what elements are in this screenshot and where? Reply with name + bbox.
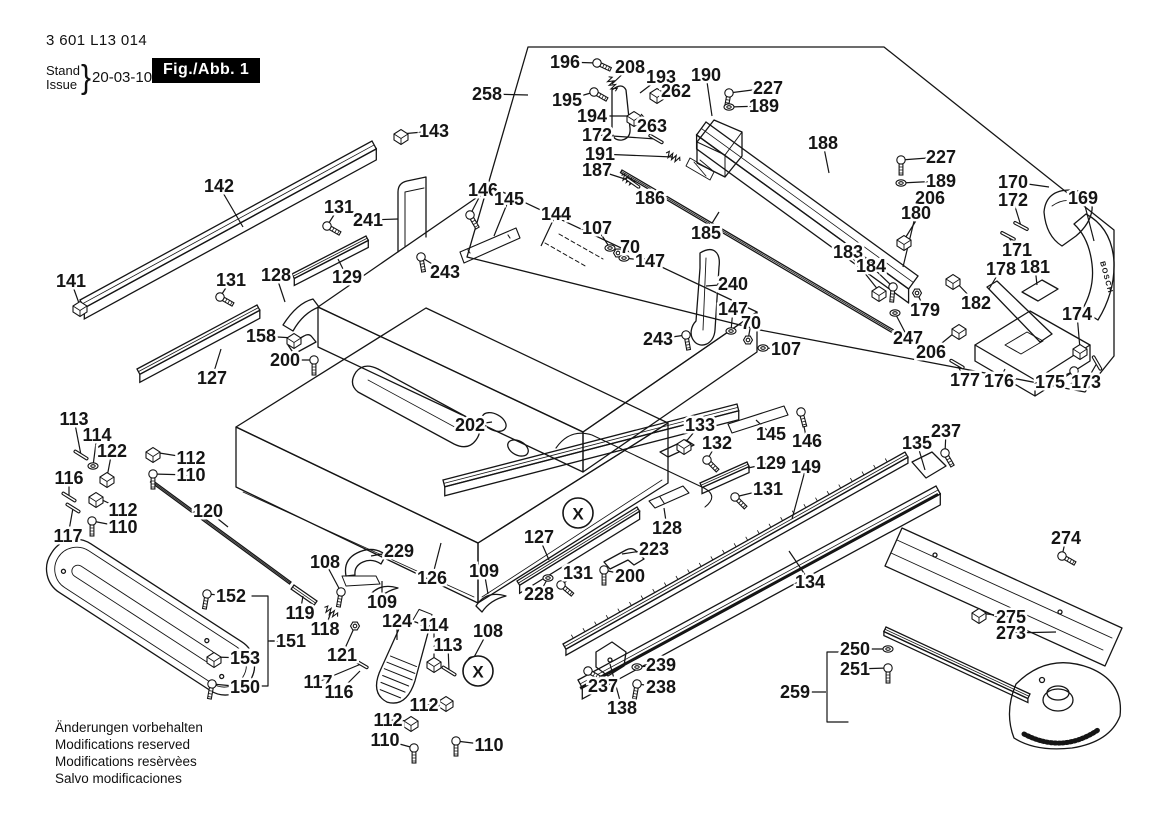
part-label-153: 153 <box>230 648 260 668</box>
screw-glyph <box>630 679 642 699</box>
part-label-124: 124 <box>382 611 412 631</box>
part-label-151: 151 <box>276 631 306 651</box>
screw-glyph <box>591 57 612 73</box>
part-label-120: 120 <box>193 501 223 521</box>
part-label-180: 180 <box>901 203 931 223</box>
part-label-147: 147 <box>635 251 665 271</box>
part-label-173: 173 <box>1071 372 1101 392</box>
part-label-110: 110 <box>474 735 503 755</box>
u-bracket-241 <box>398 177 426 252</box>
part-label-172: 172 <box>582 125 612 145</box>
washer-glyph <box>632 664 642 670</box>
part-label-259: 259 <box>780 682 810 702</box>
part-label-116: 116 <box>324 682 353 702</box>
part-label-138: 138 <box>607 698 637 718</box>
part-label-243: 243 <box>430 262 460 282</box>
part-label-145: 145 <box>756 424 786 444</box>
part-label-129: 129 <box>332 267 362 287</box>
screw-glyph <box>588 86 609 103</box>
part-label-240: 240 <box>718 274 748 294</box>
part-label-129: 129 <box>756 453 786 473</box>
part-label-116: 116 <box>54 468 83 488</box>
part-label-145: 145 <box>494 189 524 209</box>
screw-glyph <box>410 744 418 763</box>
part-label-149: 149 <box>791 457 821 477</box>
block-glyph <box>439 697 453 712</box>
screw-glyph <box>310 356 318 375</box>
part-label-262: 262 <box>661 81 691 101</box>
part-label-172: 172 <box>998 190 1028 210</box>
part-label-251: 251 <box>840 659 870 679</box>
block-glyph <box>1073 345 1087 360</box>
part-label-110: 110 <box>370 730 399 750</box>
screw-glyph <box>464 209 481 230</box>
part-label-135: 135 <box>902 433 932 453</box>
part-label-239: 239 <box>646 655 676 675</box>
part-label-131: 131 <box>216 270 246 290</box>
part-label-113: 113 <box>433 635 462 655</box>
callout-x-label: X <box>472 663 484 682</box>
pin-glyph <box>1013 221 1028 231</box>
part-label-131: 131 <box>324 197 354 217</box>
part-label-188: 188 <box>808 133 838 153</box>
clip-128-right <box>649 486 689 508</box>
block-glyph <box>427 658 441 673</box>
part-label-121: 121 <box>327 645 357 665</box>
screw-glyph <box>888 282 898 302</box>
part-label-196: 196 <box>550 52 580 72</box>
part-label-176: 176 <box>984 371 1014 391</box>
block-glyph <box>946 275 960 290</box>
block-glyph <box>404 717 418 732</box>
washer-glyph <box>724 104 734 110</box>
part-label-109: 109 <box>367 592 397 612</box>
part-label-170: 170 <box>998 172 1028 192</box>
part-label-241: 241 <box>353 210 383 230</box>
block-glyph <box>394 130 408 145</box>
washer-glyph <box>883 646 893 652</box>
part-label-177: 177 <box>950 370 980 390</box>
washer-glyph <box>890 310 900 316</box>
latch-block-190 <box>686 120 742 180</box>
modifications-note-line: Änderungen vorbehalten <box>55 719 203 736</box>
part-label-250: 250 <box>840 639 870 659</box>
part-label-185: 185 <box>691 223 721 243</box>
fence-handle-group: BOSCH <box>1044 190 1115 320</box>
extension-plate-273 <box>885 528 1122 666</box>
screw-glyph <box>884 664 892 683</box>
part-label-227: 227 <box>926 147 956 167</box>
washer-glyph <box>758 345 768 351</box>
plate-135 <box>912 452 946 478</box>
part-label-273: 273 <box>996 623 1026 643</box>
part-label-112: 112 <box>409 695 438 715</box>
part-label-202: 202 <box>455 415 485 435</box>
part-label-131: 131 <box>753 479 783 499</box>
part-label-227: 227 <box>753 78 783 98</box>
part-label-263: 263 <box>637 116 667 136</box>
screw-glyph <box>796 407 809 428</box>
part-label-152: 152 <box>216 586 246 606</box>
pad-181 <box>1022 280 1058 301</box>
part-label-158: 158 <box>246 326 276 346</box>
pin-glyph <box>74 450 89 461</box>
part-label-179: 179 <box>910 300 940 320</box>
screw-glyph <box>416 252 428 272</box>
callout-x-label: X <box>572 505 584 524</box>
part-label-114: 114 <box>419 615 448 635</box>
part-label-118: 118 <box>310 619 339 639</box>
part-label-184: 184 <box>856 256 886 276</box>
part-label-237: 237 <box>931 421 961 441</box>
washer-glyph <box>896 180 906 186</box>
nut-glyph <box>351 622 360 630</box>
screw-glyph <box>334 587 346 607</box>
screw-glyph <box>321 220 342 237</box>
screw-glyph <box>600 566 608 585</box>
part-label-186: 186 <box>635 188 665 208</box>
part-label-187: 187 <box>582 160 612 180</box>
washer-glyph <box>88 463 98 469</box>
cam-109-right <box>476 594 506 612</box>
part-label-181: 181 <box>1020 257 1050 277</box>
block-glyph <box>872 287 886 302</box>
part-label-243: 243 <box>643 329 673 349</box>
part-label-70: 70 <box>741 313 761 333</box>
part-label-131: 131 <box>563 563 593 583</box>
block-glyph <box>146 448 160 463</box>
part-label-128: 128 <box>652 518 682 538</box>
arm-178 <box>987 281 1052 342</box>
part-label-182: 182 <box>961 293 991 313</box>
washer-glyph <box>543 575 553 581</box>
screw-glyph <box>88 517 96 536</box>
screw-glyph <box>214 291 235 308</box>
part-label-194: 194 <box>577 106 607 126</box>
latch-plate-193 <box>612 86 630 140</box>
part-label-109: 109 <box>469 561 499 581</box>
block-glyph <box>89 493 103 508</box>
table-top-drawing <box>236 308 668 603</box>
part-label-228: 228 <box>524 584 554 604</box>
part-label-128: 128 <box>261 265 291 285</box>
part-label-189: 189 <box>749 96 779 116</box>
part-label-143: 143 <box>419 121 449 141</box>
screw-glyph <box>205 679 217 699</box>
part-label-175: 175 <box>1035 372 1065 392</box>
part-label-127: 127 <box>524 527 554 547</box>
part-label-144: 144 <box>541 204 571 224</box>
part-label-141: 141 <box>56 271 86 291</box>
part-label-200: 200 <box>270 350 300 370</box>
part-label-112: 112 <box>373 710 402 730</box>
part-label-169: 169 <box>1068 188 1098 208</box>
support-bracket-240 <box>691 250 719 345</box>
diagram-page: 3 601 L13 014 Stand Issue } 20-03-10 Fig… <box>0 0 1169 826</box>
screw-glyph <box>452 737 460 756</box>
exploded-diagram-canvas: BOSCH <box>0 0 1169 826</box>
part-label-229: 229 <box>384 541 414 561</box>
modifications-note: Änderungen vorbehaltenModifications rese… <box>55 719 203 787</box>
screw-glyph <box>897 156 905 175</box>
modifications-note-line: Salvo modificaciones <box>55 770 203 787</box>
part-label-134: 134 <box>795 572 825 592</box>
part-label-117: 117 <box>53 526 82 546</box>
part-label-223: 223 <box>639 539 669 559</box>
part-label-206: 206 <box>916 342 946 362</box>
part-label-133: 133 <box>685 415 715 435</box>
pin-glyph <box>66 503 81 514</box>
part-label-237: 237 <box>588 676 618 696</box>
part-label-190: 190 <box>691 65 721 85</box>
modifications-note-line: Modifications reserved <box>55 736 203 753</box>
rail-drawing <box>700 462 749 494</box>
part-label-238: 238 <box>646 677 676 697</box>
part-label-174: 174 <box>1062 304 1092 324</box>
block-glyph <box>952 325 966 340</box>
part-label-200: 200 <box>615 566 645 586</box>
screw-glyph <box>200 589 212 609</box>
part-label-178: 178 <box>986 259 1016 279</box>
part-label-274: 274 <box>1051 528 1081 548</box>
part-label-107: 107 <box>582 218 612 238</box>
part-label-142: 142 <box>204 176 234 196</box>
part-label-146: 146 <box>792 431 822 451</box>
block-glyph <box>897 236 911 251</box>
part-label-110: 110 <box>176 465 205 485</box>
part-label-127: 127 <box>197 368 227 388</box>
screw-glyph <box>701 454 721 474</box>
washer-glyph <box>726 328 736 334</box>
nut-glyph <box>913 289 922 297</box>
modifications-note-line: Modifications resèrvèes <box>55 753 203 770</box>
part-label-107: 107 <box>771 339 801 359</box>
block-glyph <box>100 473 114 488</box>
clip-128-left <box>283 299 319 331</box>
rail-drawing <box>151 480 291 584</box>
part-label-208: 208 <box>615 57 645 77</box>
rail-drawing <box>563 452 908 655</box>
part-label-108: 108 <box>310 552 340 572</box>
nut-glyph <box>744 336 753 344</box>
part-label-150: 150 <box>230 677 260 697</box>
part-label-110: 110 <box>108 517 137 537</box>
part-label-126: 126 <box>417 568 447 588</box>
part-label-258: 258 <box>472 84 502 104</box>
screw-glyph <box>939 447 956 468</box>
part-label-122: 122 <box>97 441 127 461</box>
miter-gauge-259 <box>1009 663 1120 749</box>
block-glyph <box>207 653 221 668</box>
part-label-132: 132 <box>702 433 732 453</box>
screw-glyph <box>1056 550 1077 567</box>
washer-glyph <box>605 245 615 251</box>
part-label-108: 108 <box>473 621 503 641</box>
